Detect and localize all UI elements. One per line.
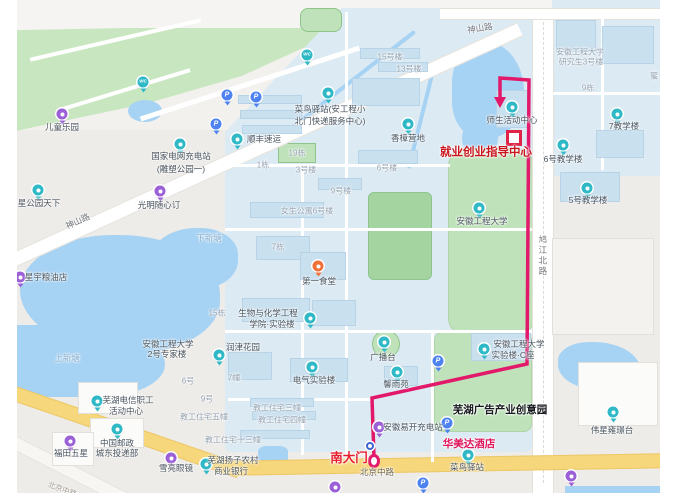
poi-pin-icon[interactable] [463, 450, 474, 461]
poi-pin-icon[interactable] [582, 183, 593, 194]
map-label: 2号专家楼 [148, 350, 187, 360]
poi-pin-icon[interactable] [57, 109, 68, 120]
map-label: 7教学楼 [609, 122, 639, 132]
map-screenshot: WCWCPPPPPP 神山路神山路鸠江北路北京中路北京中路下新塘上新塘15号楼1… [0, 0, 676, 498]
map-label: 19栋 [289, 148, 306, 157]
poi-pin-icon[interactable] [232, 134, 243, 145]
map-label: 9栋 [582, 83, 594, 92]
map-label: 鸠江北路 [537, 235, 547, 277]
map-label: 15栋 [209, 308, 226, 317]
route-arrow-icon [494, 97, 506, 108]
map-label: 上新塘 [54, 354, 80, 364]
map-label: 教工住宅五幢 [180, 412, 228, 421]
destination-marker[interactable] [508, 132, 521, 145]
poi-pin-icon[interactable] [479, 344, 490, 355]
map-label: 生物与化学工程 [238, 309, 298, 319]
map-label: 商业银行 [214, 467, 248, 477]
map-label: 广播台 [370, 353, 396, 363]
map-label: 下新塘 [196, 234, 222, 244]
map-label: 3号楼 [296, 165, 316, 174]
map-label: 蜜 [650, 71, 658, 80]
map-label: 15号楼 [378, 52, 403, 61]
map-label: 儿童乐园 [45, 123, 79, 133]
poi-pin-icon[interactable] [307, 362, 318, 373]
map-label: 雪亮眼镜 [159, 464, 193, 474]
poi-pin-icon[interactable] [305, 313, 316, 324]
parking-icon[interactable]: P [251, 92, 262, 103]
map-label: 北门快递服务中心) [295, 117, 366, 127]
map-label: 6号楼 [377, 163, 397, 172]
margin-right [660, 0, 676, 498]
poi-pin-icon[interactable] [612, 109, 623, 120]
poi-pin-icon[interactable] [65, 436, 76, 447]
map-label: 教工住宅四幢 [258, 415, 306, 424]
map-label: 安徽工程大学 [456, 217, 507, 227]
poi-pin-icon[interactable] [403, 119, 414, 130]
restroom-icon[interactable]: WC [302, 50, 313, 61]
poi-pin-icon[interactable] [214, 350, 225, 361]
map-canvas[interactable]: WCWCPPPPPP 神山路神山路鸠江北路北京中路北京中路下新塘上新塘15号楼1… [0, 0, 676, 498]
map-label: 安徽易开充电站 [383, 423, 443, 433]
hotel-label: 华美达酒店 [443, 438, 496, 450]
poi-pin-icon[interactable] [392, 367, 403, 378]
south-gate-label: 南大门 [330, 451, 368, 465]
map-label: 星公园天下 [18, 199, 61, 209]
map-label: 安徽工程大学 [493, 340, 544, 350]
map-label: 第一食堂 [302, 277, 336, 287]
map-label: 润津花园 [226, 343, 260, 353]
map-label: 菜鸟驿站(安工程小 [295, 105, 366, 115]
map-label: 13号楼 [397, 64, 422, 73]
map-label: 伟星雍璟台 [591, 426, 634, 436]
map-label: 7幢 [228, 373, 240, 382]
map-label: 国家电网充电站 [151, 152, 211, 162]
gate-dot-icon[interactable] [366, 442, 374, 450]
map-label: 芜湖电信职工 [102, 396, 153, 406]
map-label: 师生活动中心 [486, 116, 537, 126]
map-label: 教工住宅三幢 [253, 403, 301, 412]
poi-pin-icon[interactable] [33, 185, 44, 196]
map-label: 9号 [201, 394, 213, 403]
poi-pin-icon[interactable] [155, 186, 166, 197]
map-label: 6号 [182, 376, 194, 385]
poi-pin-icon[interactable] [330, 482, 341, 493]
map-label: 星宇粮油店 [25, 273, 68, 283]
poi-pin-icon[interactable] [379, 337, 390, 348]
map-label: 7栋 [272, 242, 284, 251]
map-label: 北京中路 [360, 468, 394, 478]
poi-pin-icon[interactable] [166, 453, 177, 464]
industry-park-label: 芜湖广告产业创意园 [453, 404, 548, 416]
map-label: 芜湖扬子农村 [207, 456, 258, 466]
poi-pin-icon[interactable] [558, 140, 569, 151]
poi-pin-icon[interactable] [608, 407, 619, 418]
poi-pin-icon[interactable] [323, 88, 334, 99]
map-label: 馨雨苑 [383, 380, 409, 390]
restaurant-icon[interactable] [313, 261, 324, 272]
map-label: 9号楼 [331, 186, 351, 195]
map-label: (雕塑公园一) [157, 165, 205, 175]
map-label: 5号教学楼 [569, 196, 608, 206]
poi-pin-icon[interactable] [92, 396, 103, 407]
parking-icon[interactable]: P [418, 478, 429, 489]
map-label: 电气实验楼 [293, 376, 336, 386]
parking-icon[interactable]: P [211, 119, 222, 130]
margin-bottom [0, 493, 676, 498]
map-label: 香樟营地 [391, 134, 425, 144]
map-label: 女生公寓6号楼 [281, 206, 333, 215]
map-label: 学院·实验楼 [249, 320, 294, 330]
poi-pin-icon[interactable] [507, 102, 518, 113]
restroom-icon[interactable]: WC [138, 77, 149, 88]
map-label: 活动中心 [109, 407, 143, 417]
map-label: 菜鸟驿站 [450, 463, 484, 473]
map-label: 研究生3号楼 [559, 57, 603, 66]
poi-pin-icon[interactable] [175, 139, 186, 150]
map-label: 安徽工程大学 [556, 47, 604, 56]
destination-label: 就业创业指导中心 [440, 146, 532, 159]
map-label: 实验楼·C座 [492, 351, 535, 361]
map-label: 顺丰速运 [247, 135, 281, 145]
origin-marker[interactable] [370, 456, 379, 467]
map-label: 教工住宅十三幢 [205, 435, 261, 444]
poi-pin-icon[interactable] [566, 471, 577, 482]
parking-icon[interactable]: P [222, 90, 233, 101]
parking-icon[interactable]: P [433, 356, 444, 367]
poi-pin-icon[interactable] [474, 203, 485, 214]
poi-pin-icon[interactable] [112, 424, 123, 435]
route-overlay [0, 0, 676, 498]
map-label: 城东投递部 [96, 449, 139, 459]
map-label: 光明随心订 [138, 201, 181, 211]
margin-left [0, 0, 17, 498]
map-label: 6号教学楼 [544, 155, 583, 165]
map-label: 福田五星 [54, 449, 88, 459]
map-label: 1栋 [257, 160, 269, 169]
